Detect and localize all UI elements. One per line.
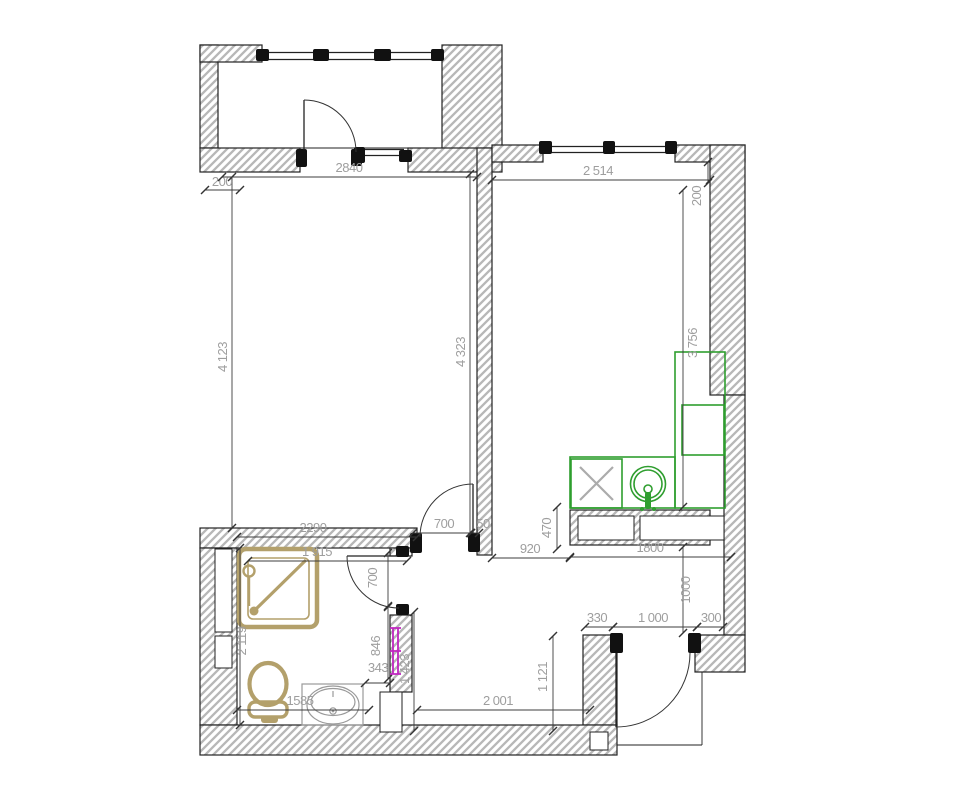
window-mullion-icon (313, 49, 329, 61)
toilet-bowl (250, 663, 287, 705)
dim-label: 1 915 (302, 544, 332, 559)
sink-drain (644, 485, 652, 493)
dim-label: 1000 (678, 576, 693, 603)
shower-door-diagonal (254, 560, 306, 611)
floor-plan-canvas: 2840 200 2 514 200 4 123 4 323 3 756 229… (0, 0, 961, 809)
toilet-base (261, 716, 278, 723)
wall-balcony-top-left (200, 45, 262, 62)
dim-label: 300 (701, 610, 721, 625)
sink-faucet-icon (645, 492, 651, 509)
entry-door (610, 633, 701, 727)
door-jamb-icon (296, 149, 307, 167)
dim-label: 330 (587, 610, 607, 625)
door-swing-arc (304, 100, 356, 152)
duct-inset-upper (215, 549, 232, 632)
kitchen-sink-icon (631, 467, 666, 512)
wall-entry-right (695, 635, 745, 672)
wall-right-lower (724, 395, 745, 635)
fridge-icon (682, 405, 724, 455)
bath-wall-pier (380, 692, 402, 732)
door-jamb-icon (396, 546, 409, 557)
dimensions: 2840 200 2 514 200 4 123 4 323 3 756 229… (201, 158, 735, 735)
kitchen-fixtures (570, 352, 725, 511)
dim-label: 200 (689, 186, 704, 206)
door-jamb-icon (610, 633, 623, 653)
wall-between-rooms (477, 148, 492, 555)
dim-label: 2 514 (583, 163, 613, 178)
window-mullion-icon (665, 141, 677, 154)
kitchen-niche-right (640, 516, 724, 540)
window-mullion-icon (603, 141, 615, 154)
window-mullion-icon (256, 49, 269, 61)
wall-top-right-a (492, 145, 543, 162)
door-jamb-icon (688, 633, 701, 653)
window-jamb-icon (399, 150, 412, 162)
dim-label: 50 (476, 516, 490, 531)
dim-label: 2 001 (483, 693, 513, 708)
vestibule-boundary (617, 672, 702, 745)
dim-label: 1 121 (535, 662, 550, 692)
right-room-window (539, 141, 677, 154)
window-glazing-lines (258, 53, 440, 60)
toilet-icon (249, 663, 287, 723)
dim-label: 920 (520, 541, 540, 556)
kitchen-niche-left (578, 516, 634, 540)
dim-label: 3 756 (685, 328, 700, 358)
dim-label: 2290 (300, 520, 327, 535)
duct-inset-lower (215, 636, 232, 668)
window-mullion-icon (431, 49, 444, 61)
balcony-window (256, 49, 444, 61)
walls (200, 45, 745, 755)
shower-head-icon (244, 566, 255, 577)
dim-label: 4 123 (215, 342, 230, 372)
wall-right-upper (710, 145, 745, 395)
door-swing-arc (616, 653, 690, 727)
bottom-wall-cap (590, 732, 608, 750)
door-jamb-icon (396, 604, 409, 615)
wall-balcony-right-pier (442, 45, 502, 150)
dim-label: 1585 (287, 693, 314, 708)
dim-label: 1 423 (397, 654, 412, 684)
faucet-foot (652, 507, 656, 511)
balcony-door (296, 100, 362, 167)
dim-label: 343 (368, 660, 388, 675)
balcony-block-window (354, 147, 412, 163)
dim-label: 700 (434, 516, 454, 531)
dim-label: 1800 (637, 540, 664, 555)
dim-label: 2 119 (234, 626, 249, 655)
dim-label: 2840 (336, 160, 363, 175)
floor-plan-page: 2840 200 2 514 200 4 123 4 323 3 756 229… (0, 0, 961, 809)
stove-x-mark-icon (580, 467, 613, 500)
faucet-foot (640, 507, 644, 511)
window-mullion-icon (374, 49, 391, 61)
door-jamb-icon (468, 533, 480, 552)
dim-label: 4 323 (453, 337, 468, 367)
dim-label: 700 (365, 568, 380, 588)
dim-label: 846 (368, 636, 383, 656)
dim-label: 470 (539, 518, 554, 538)
dim-label: 1 000 (638, 610, 668, 625)
window-mullion-icon (539, 141, 552, 154)
window-glazing-lines (360, 150, 404, 156)
shower-drain (250, 607, 259, 616)
wall-top-left-a (200, 148, 300, 172)
